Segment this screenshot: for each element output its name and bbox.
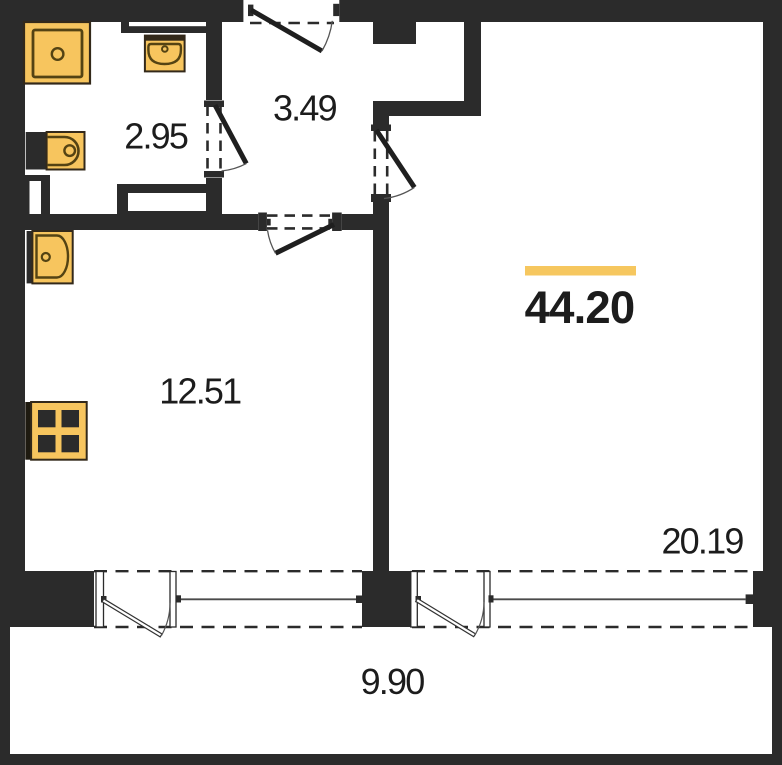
svg-text:20.19: 20.19 <box>661 521 743 562</box>
svg-text:12.51: 12.51 <box>159 371 241 412</box>
svg-text:44.20: 44.20 <box>525 282 635 333</box>
svg-text:3.49: 3.49 <box>273 88 337 129</box>
svg-text:9.90: 9.90 <box>361 661 425 702</box>
svg-text:2.95: 2.95 <box>124 116 188 157</box>
